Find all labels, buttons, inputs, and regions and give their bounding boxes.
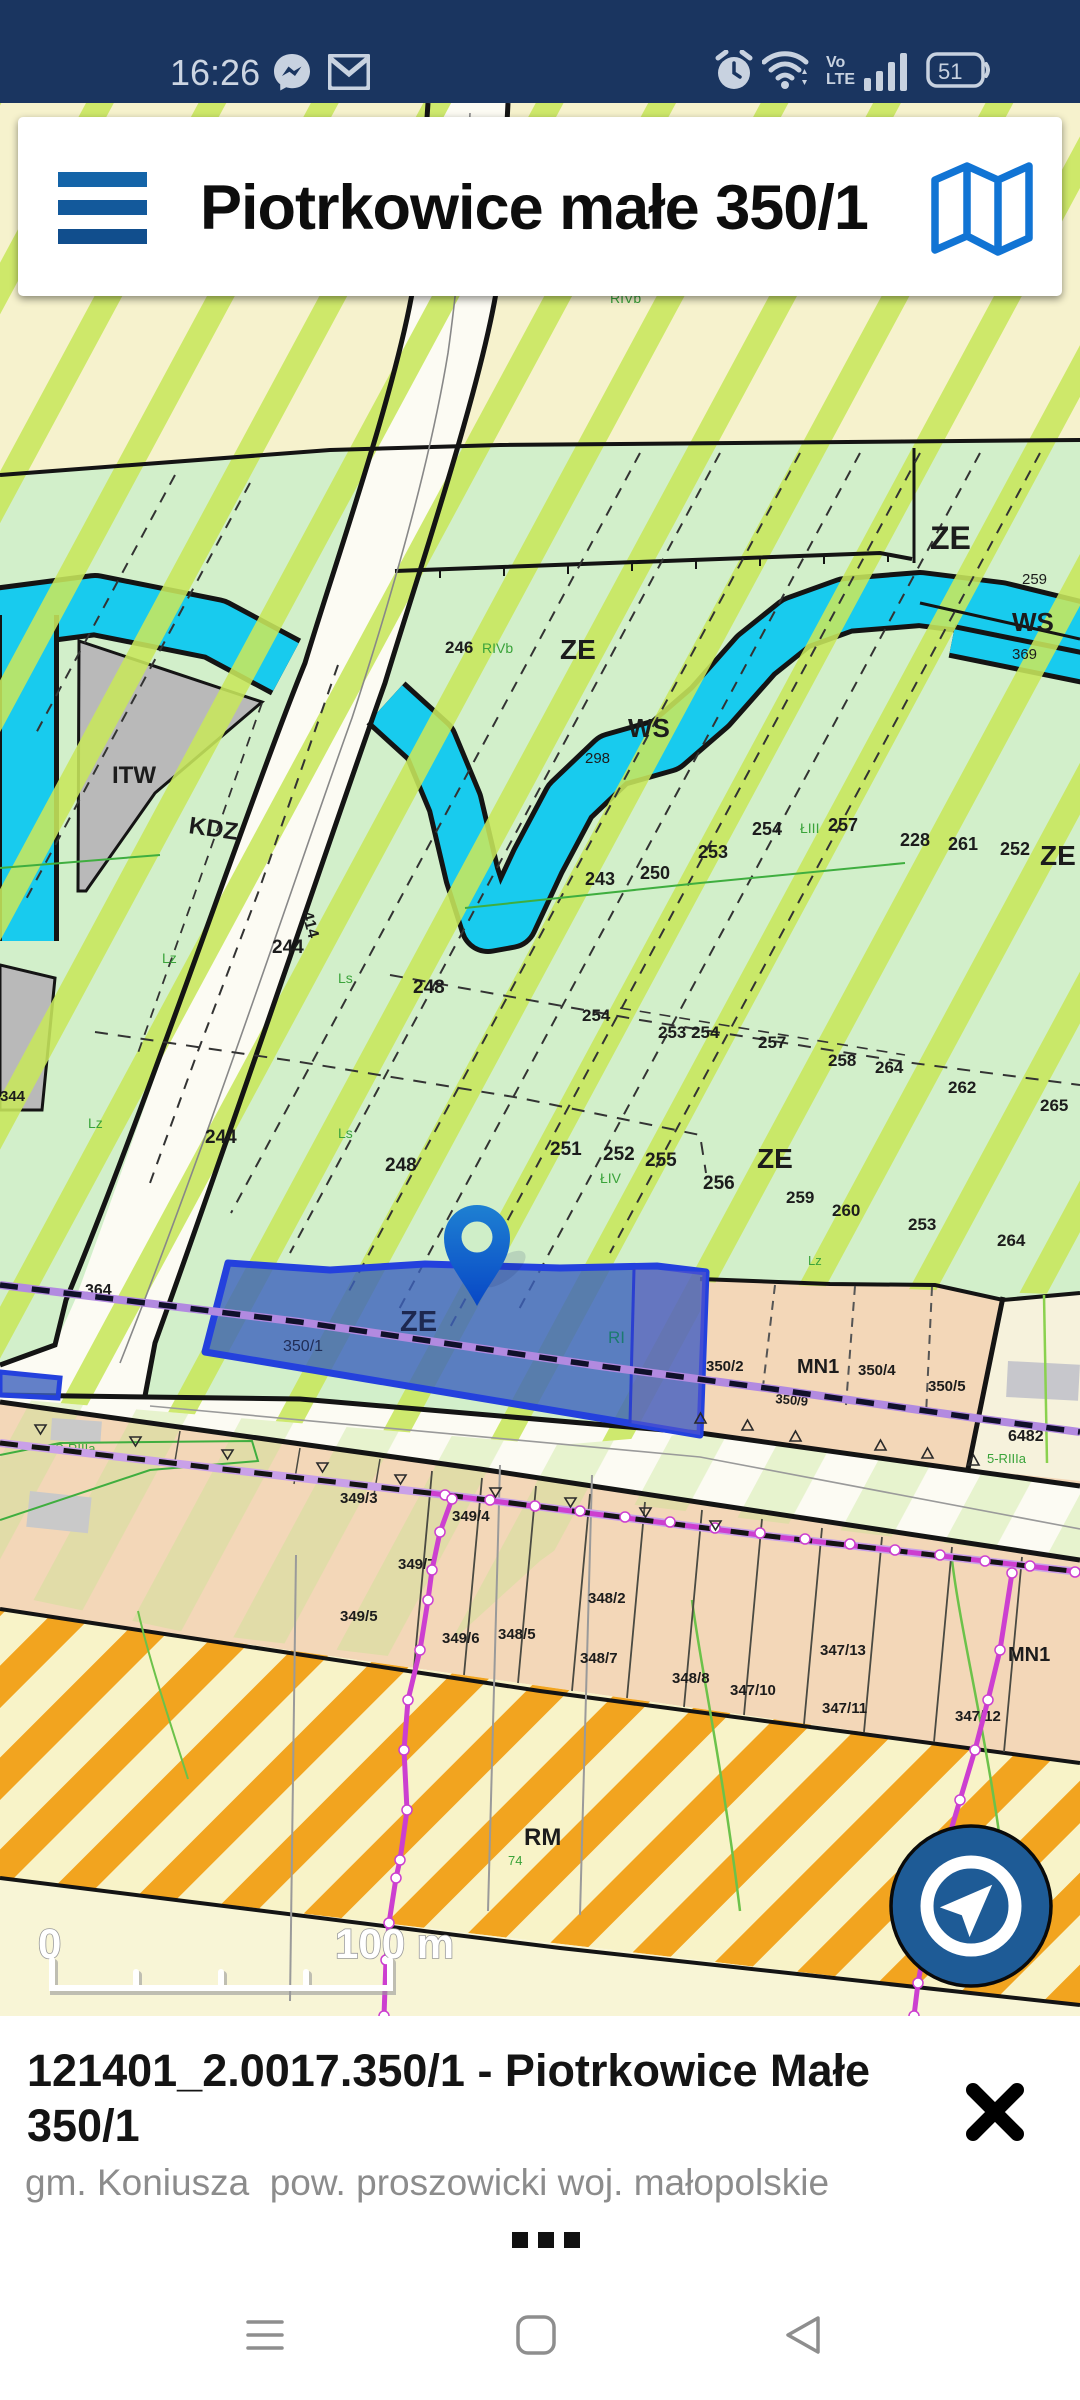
svg-text:350/4: 350/4 <box>858 1362 896 1379</box>
svg-text:257: 257 <box>758 1033 786 1052</box>
svg-text:256: 256 <box>703 1173 735 1194</box>
svg-text:261: 261 <box>948 834 978 854</box>
svg-text:Ls: Ls <box>338 970 353 986</box>
svg-text:ZE: ZE <box>930 520 971 556</box>
svg-text:347/10: 347/10 <box>730 1682 776 1699</box>
svg-text:RM: RM <box>524 1824 561 1851</box>
svg-text:298: 298 <box>585 750 610 767</box>
svg-text:350/5: 350/5 <box>928 1378 966 1395</box>
svg-text:252: 252 <box>1000 839 1030 859</box>
svg-text:51: 51 <box>938 59 962 84</box>
svg-text:349/3: 349/3 <box>340 1490 378 1507</box>
svg-text:RI: RI <box>608 1328 625 1347</box>
svg-text:Lz: Lz <box>808 1253 822 1268</box>
svg-text:348/2: 348/2 <box>588 1590 626 1607</box>
svg-text:ZE: ZE <box>400 1306 437 1338</box>
svg-text:265: 265 <box>1040 1096 1068 1115</box>
svg-text:264: 264 <box>875 1058 904 1077</box>
svg-text:244: 244 <box>205 1127 237 1148</box>
svg-text:253 254: 253 254 <box>658 1023 720 1042</box>
svg-text:253: 253 <box>698 842 728 862</box>
svg-text:WS: WS <box>628 713 670 743</box>
svg-text:254: 254 <box>752 819 782 839</box>
svg-text:74: 74 <box>508 1853 522 1868</box>
svg-text:260: 260 <box>832 1201 860 1220</box>
svg-text:ZE: ZE <box>560 634 596 665</box>
svg-text:257: 257 <box>828 815 858 835</box>
svg-text:264: 264 <box>997 1231 1026 1250</box>
svg-text:347/13: 347/13 <box>820 1642 866 1659</box>
svg-text:ŁIV: ŁIV <box>600 1170 622 1186</box>
svg-text:MN1: MN1 <box>797 1356 839 1378</box>
svg-text:347/11: 347/11 <box>822 1700 867 1717</box>
svg-text:246: 246 <box>445 638 473 657</box>
svg-text:Lz: Lz <box>162 950 177 966</box>
svg-text:228: 228 <box>900 830 930 850</box>
svg-text:ZE: ZE <box>757 1143 793 1174</box>
svg-text:348/8: 348/8 <box>672 1670 710 1687</box>
svg-text:243: 243 <box>585 869 615 889</box>
svg-text:347/12: 347/12 <box>955 1708 1001 1725</box>
svg-text:6482: 6482 <box>1008 1428 1044 1445</box>
svg-text:349/6: 349/6 <box>442 1630 480 1647</box>
svg-text:253: 253 <box>908 1215 936 1234</box>
svg-text:WS: WS <box>1012 607 1054 637</box>
svg-text:369: 369 <box>1012 646 1037 663</box>
svg-text:348/7: 348/7 <box>580 1650 618 1667</box>
svg-text:248: 248 <box>413 977 445 998</box>
svg-text:RIVb: RIVb <box>482 640 513 656</box>
svg-text:350/2: 350/2 <box>706 1358 744 1375</box>
svg-text:5-RIIIa: 5-RIIIa <box>987 1451 1027 1466</box>
svg-text:MN1: MN1 <box>1008 1644 1050 1666</box>
svg-text:350/1: 350/1 <box>283 1338 323 1355</box>
svg-text:349/4: 349/4 <box>452 1508 490 1525</box>
svg-text:259: 259 <box>786 1188 814 1207</box>
svg-text:Ls: Ls <box>338 1125 353 1141</box>
svg-text:Lz: Lz <box>88 1115 103 1131</box>
svg-text:ZE: ZE <box>1040 840 1076 871</box>
svg-text:344: 344 <box>0 1088 26 1105</box>
svg-text:254: 254 <box>582 1006 611 1025</box>
svg-text:250: 250 <box>640 863 670 883</box>
svg-text:248: 248 <box>385 1155 417 1176</box>
svg-text:ITW: ITW <box>112 762 156 789</box>
svg-text:255: 255 <box>645 1150 677 1171</box>
svg-text:ŁIII: ŁIII <box>800 820 819 836</box>
svg-text:259: 259 <box>1022 571 1047 588</box>
svg-text:349/5: 349/5 <box>340 1608 378 1625</box>
svg-text:262: 262 <box>948 1078 976 1097</box>
svg-text:244: 244 <box>272 937 304 958</box>
svg-text:258: 258 <box>828 1051 856 1070</box>
svg-text:251: 251 <box>550 1139 582 1160</box>
svg-text:252: 252 <box>603 1144 635 1165</box>
svg-text:348/5: 348/5 <box>498 1626 536 1643</box>
